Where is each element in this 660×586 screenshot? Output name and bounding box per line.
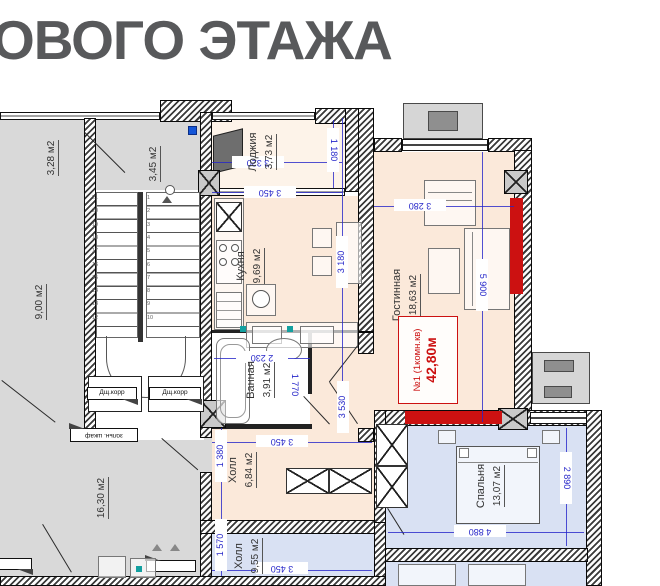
dim-hall2-depth: 1 570 [215, 519, 227, 571]
wardrobe-hall [286, 468, 329, 494]
stove-burner [219, 258, 227, 266]
dim-hall2-width: 3 450 [256, 562, 308, 574]
wardrobe-bedroom [376, 424, 408, 466]
window-top-left [0, 112, 160, 120]
nightstand [438, 430, 456, 444]
wall-hall1-right-stub [358, 428, 374, 442]
label-service3: 3,45 м2 [143, 119, 173, 209]
dining-chair [312, 228, 332, 248]
dim-kitchen-depth: 3 180 [336, 236, 348, 288]
armchair-line [428, 192, 472, 193]
vent-mark [152, 544, 162, 551]
wardrobe-bedroom [376, 466, 408, 508]
label-service1: 9,00 м2 [29, 257, 59, 347]
stair-flight-left [96, 192, 138, 338]
duct-label-left: Дщ.корр [87, 387, 137, 400]
wardrobe-hall [329, 468, 372, 494]
window-bedroom-top [530, 412, 588, 424]
plan-marker [188, 126, 197, 135]
stair-stringer [138, 192, 143, 342]
fixture-marker [136, 566, 142, 572]
fixture-marker [287, 326, 293, 332]
label-service2: 3,28 м2 [41, 113, 71, 203]
label-bath: Ванная 3,91 м2 [245, 335, 275, 425]
dim-loggia-depth: 1 180 [327, 128, 339, 172]
label-hall2: Холл 9,55 м2 [233, 511, 263, 586]
highlight-wall-living [510, 198, 523, 294]
wall-bedroom-right [586, 410, 602, 586]
stair-numbers-left: 21201918171615141312 [92, 192, 102, 338]
label-service4: 16,30 м2 [91, 453, 121, 543]
vent-mark [170, 544, 180, 551]
wall-bedroom-bottom [374, 548, 588, 562]
wall-kitchen-living [358, 108, 374, 332]
sofa-cushion-line [472, 232, 473, 306]
wall-bottom [0, 576, 386, 586]
column-bedroom-corner [498, 408, 528, 430]
dim-bedroom-depth: 2 890 [560, 452, 572, 504]
wall-hall1-hall2 [200, 520, 386, 534]
bed-partial [468, 564, 526, 586]
fixture-marker [240, 326, 246, 332]
floor-plan-sheet: ОВОГО ЭТАЖА [0, 0, 660, 586]
apartment-label: №1 (1комн.кв) 42,80м [412, 317, 444, 403]
exterior-unit-right-inner1 [544, 360, 574, 372]
apartment-area: 42,80м [423, 317, 440, 403]
column-living-corner [504, 170, 528, 194]
coffee-table [428, 248, 460, 294]
wall-living-top-left [374, 138, 402, 152]
pillow [527, 448, 537, 458]
nightstand [542, 430, 560, 444]
fixture-box [98, 556, 126, 578]
bed-partial [398, 564, 456, 586]
dim-entry-depth: 3 530 [337, 381, 349, 433]
counter-appliance2 [300, 326, 334, 344]
ash-cabinet-label: зольн. шкаф [70, 428, 138, 442]
exterior-unit-top-inner [428, 111, 458, 131]
apartment-number: №1 (1комн.кв) [412, 317, 423, 403]
label-bedroom: Спальня 13,07 м2 [475, 441, 505, 531]
label-loggia: Лоджия 3,73 м2 [247, 107, 277, 197]
page-title: ОВОГО ЭТАЖА [0, 8, 392, 72]
dim-bath-depth: 1 770 [288, 359, 300, 411]
small-flag-bottom-left [0, 558, 32, 570]
wall-loggia-right [345, 108, 359, 192]
dim-living-height: 5 900 [476, 259, 488, 311]
window-living-top [402, 139, 488, 151]
dim-living-width: 3 280 [394, 199, 446, 211]
wall-corridor-living-stub [358, 332, 374, 354]
duct-label-right: Дщ.корр [149, 387, 201, 400]
exterior-unit-right-inner2 [544, 386, 572, 398]
pillow [459, 448, 469, 458]
dim-hall1-width: 3 450 [256, 435, 308, 447]
label-hall1: Холл 6,84 м2 [227, 425, 257, 515]
stove-burner [219, 244, 227, 252]
highlight-wall-bedroom [405, 411, 502, 424]
fixture-box [130, 558, 156, 578]
label-kitchen: Кухня 9,69 м2 [235, 221, 265, 311]
dim-hall1-depth: 1 380 [215, 430, 227, 482]
stair-numbers-right: 12345678910 [147, 192, 157, 338]
dining-chair [312, 256, 332, 276]
